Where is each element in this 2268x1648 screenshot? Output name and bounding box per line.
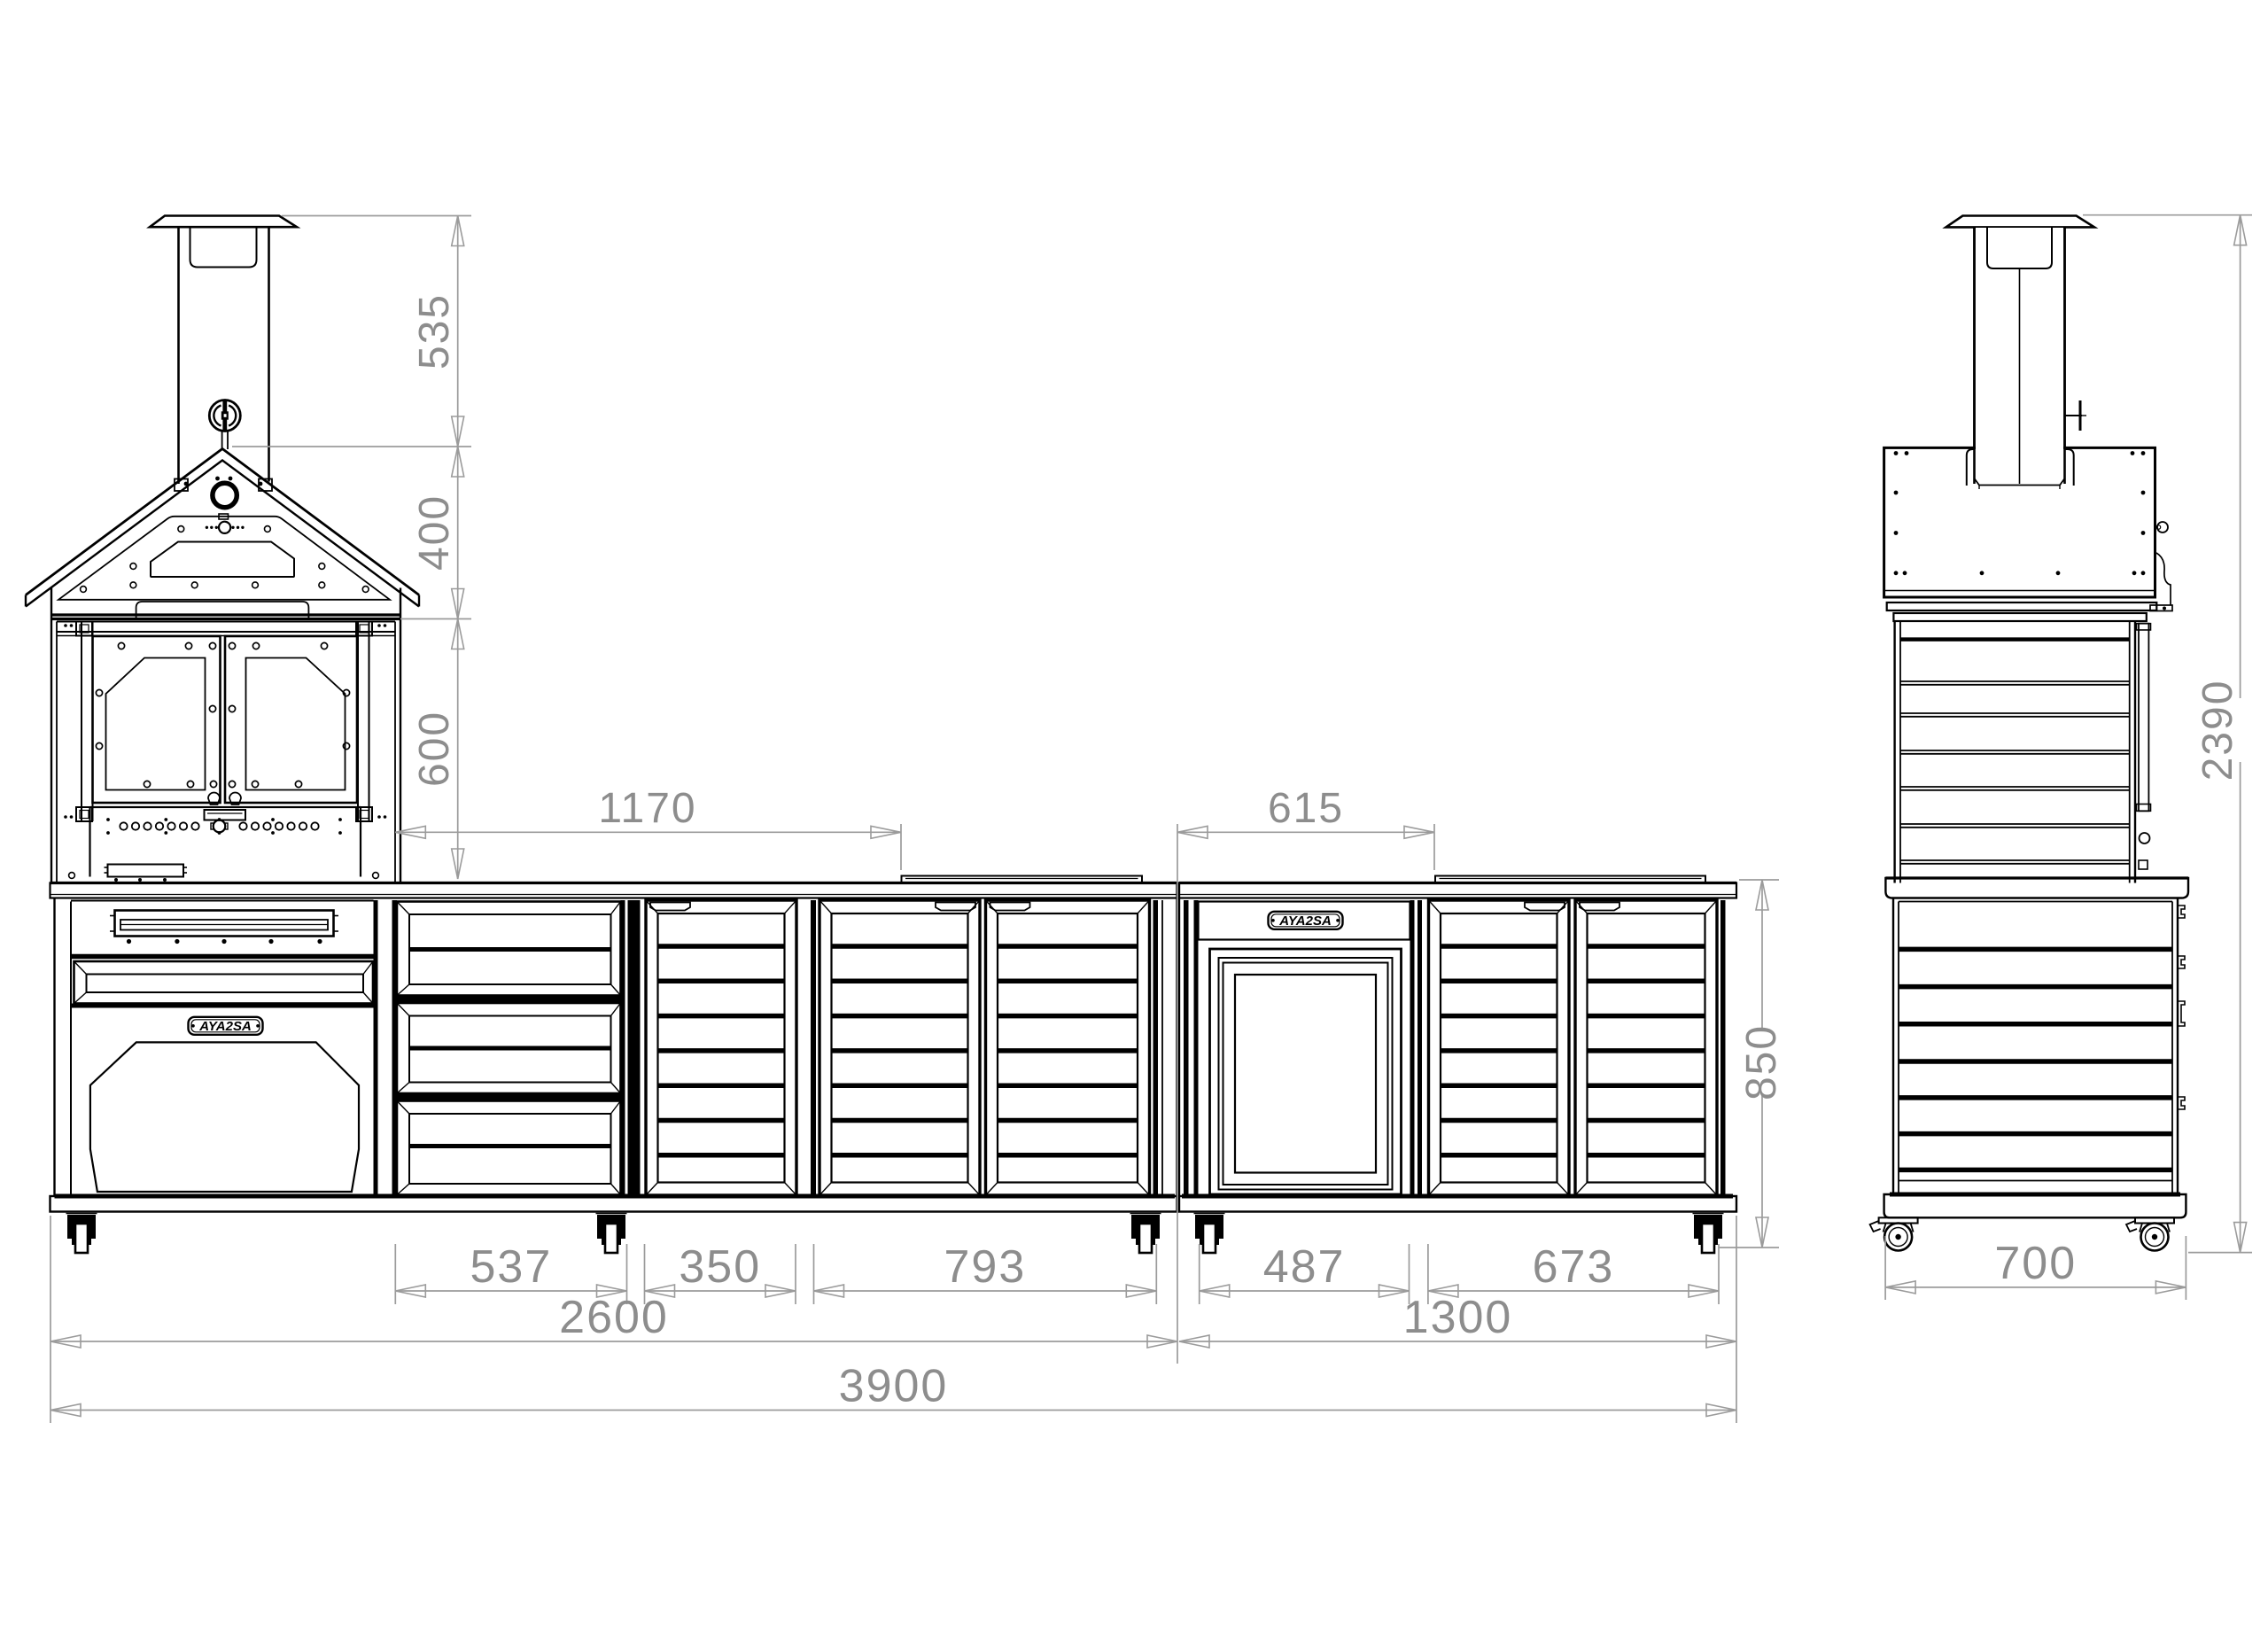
svg-text:487: 487 — [1263, 1241, 1346, 1293]
svg-text:537: 537 — [470, 1241, 553, 1293]
svg-text:2390: 2390 — [2194, 680, 2241, 781]
svg-text:1300: 1300 — [1403, 1292, 1513, 1343]
svg-text:AYA2SA: AYA2SA — [198, 1019, 252, 1034]
svg-text:400: 400 — [411, 494, 458, 571]
svg-text:600: 600 — [411, 711, 458, 787]
svg-text:793: 793 — [944, 1241, 1027, 1293]
svg-text:700: 700 — [1994, 1238, 2077, 1289]
svg-text:615: 615 — [1268, 785, 1344, 832]
svg-text:850: 850 — [1738, 1024, 1785, 1100]
svg-text:2600: 2600 — [559, 1292, 669, 1343]
svg-text:350: 350 — [679, 1241, 761, 1293]
svg-text:3900: 3900 — [839, 1361, 949, 1412]
svg-text:AYA2SA: AYA2SA — [1278, 913, 1332, 929]
svg-text:535: 535 — [411, 293, 458, 369]
svg-text:1170: 1170 — [598, 785, 696, 832]
svg-text:673: 673 — [1533, 1241, 1615, 1293]
